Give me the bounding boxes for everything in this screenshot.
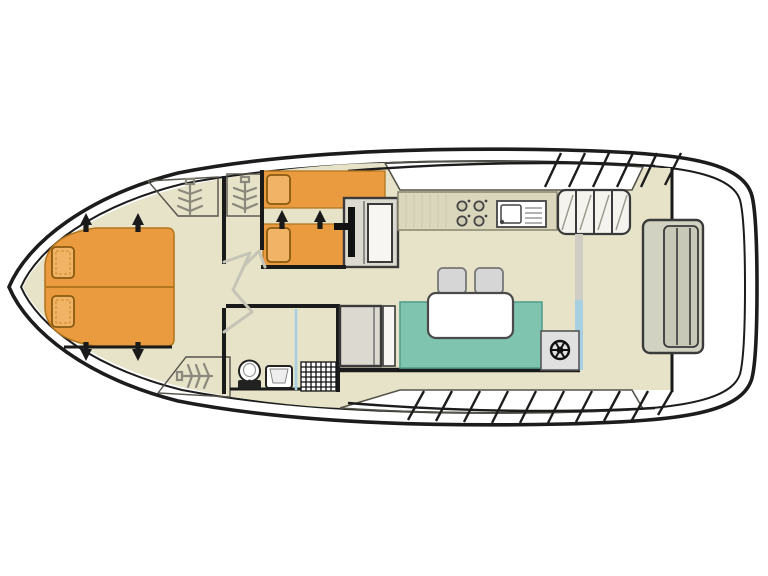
washbasin-icon [266, 366, 292, 388]
aft-deck [643, 220, 703, 353]
door-track [575, 234, 583, 300]
faucet-dot [500, 220, 504, 224]
seat-back [348, 207, 355, 257]
seat-handle [334, 223, 350, 230]
dining-table [428, 293, 513, 338]
pillow [267, 175, 290, 204]
pillow [267, 228, 290, 262]
companionway-steps-lower [340, 306, 395, 366]
vanity-steps-unit [334, 198, 398, 267]
pillow [52, 247, 74, 278]
galley [398, 192, 557, 230]
pillow [52, 296, 74, 327]
boat-floor-plan-page [0, 0, 768, 576]
stool [438, 268, 466, 294]
boat-floor-plan [0, 0, 768, 576]
sink-drainer-icon [497, 201, 546, 227]
shower-grid-icon [301, 362, 336, 391]
stool [475, 268, 503, 294]
stern-bench-inner [664, 226, 698, 347]
toilet-icon [238, 361, 261, 390]
companionway-steps-top [558, 190, 630, 234]
helm-station [541, 331, 579, 370]
